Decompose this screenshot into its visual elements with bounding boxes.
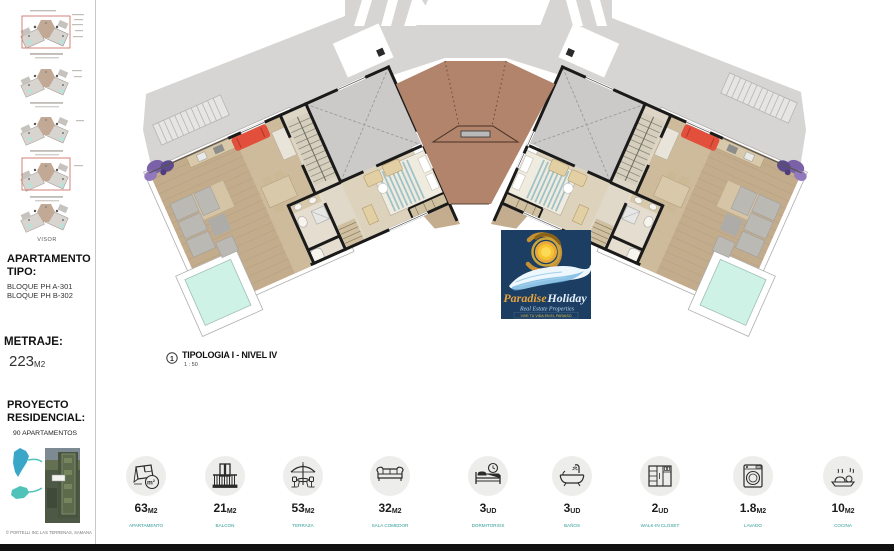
svg-text:BLOQUE PH A-301: BLOQUE PH A-301 [7, 282, 72, 291]
svg-text:BLOQUE PH B-302: BLOQUE PH B-302 [7, 291, 73, 300]
svg-text:© PORTELLI INC LAS TERRENAS, S: © PORTELLI INC LAS TERRENAS, SAMANA [6, 530, 92, 535]
svg-text:WALK-IN CLOSET: WALK-IN CLOSET [641, 523, 680, 528]
svg-text:BALCON: BALCON [216, 523, 235, 528]
svg-text:TIPO:: TIPO: [7, 266, 36, 278]
svg-text:METRAJE:: METRAJE: [4, 336, 63, 348]
svg-text:90 APARTAMENTOS: 90 APARTAMENTOS [13, 430, 78, 437]
svg-text:APARTAMENTO: APARTAMENTO [129, 523, 164, 528]
svg-text:DORMITORIOS: DORMITORIOS [472, 523, 505, 528]
svg-text:1 : 50: 1 : 50 [184, 362, 198, 368]
svg-text:PROYECTO: PROYECTO [7, 399, 69, 411]
svg-text:LAVADO: LAVADO [744, 523, 762, 528]
svg-text:VIVE TU VIDA EN EL PARAISO: VIVE TU VIDA EN EL PARAISO [520, 314, 571, 318]
svg-text:TERRAZA: TERRAZA [292, 523, 314, 528]
svg-text:TIPOLOGIA I - NIVEL IV: TIPOLOGIA I - NIVEL IV [182, 350, 277, 360]
svg-text:Holiday: Holiday [546, 291, 587, 305]
svg-text:Real Estate Properties: Real Estate Properties [519, 307, 575, 313]
svg-text:COCINA: COCINA [834, 523, 853, 528]
svg-text:BAÑOS: BAÑOS [564, 522, 580, 528]
svg-text:1: 1 [170, 356, 174, 363]
svg-text:VISOR: VISOR [37, 237, 57, 243]
svg-text:RESIDENCIAL:: RESIDENCIAL: [7, 412, 85, 424]
svg-text:SALA COMEDOR: SALA COMEDOR [372, 523, 409, 528]
svg-text:Paradise: Paradise [503, 291, 547, 305]
svg-text:APARTAMENTO: APARTAMENTO [7, 253, 91, 265]
